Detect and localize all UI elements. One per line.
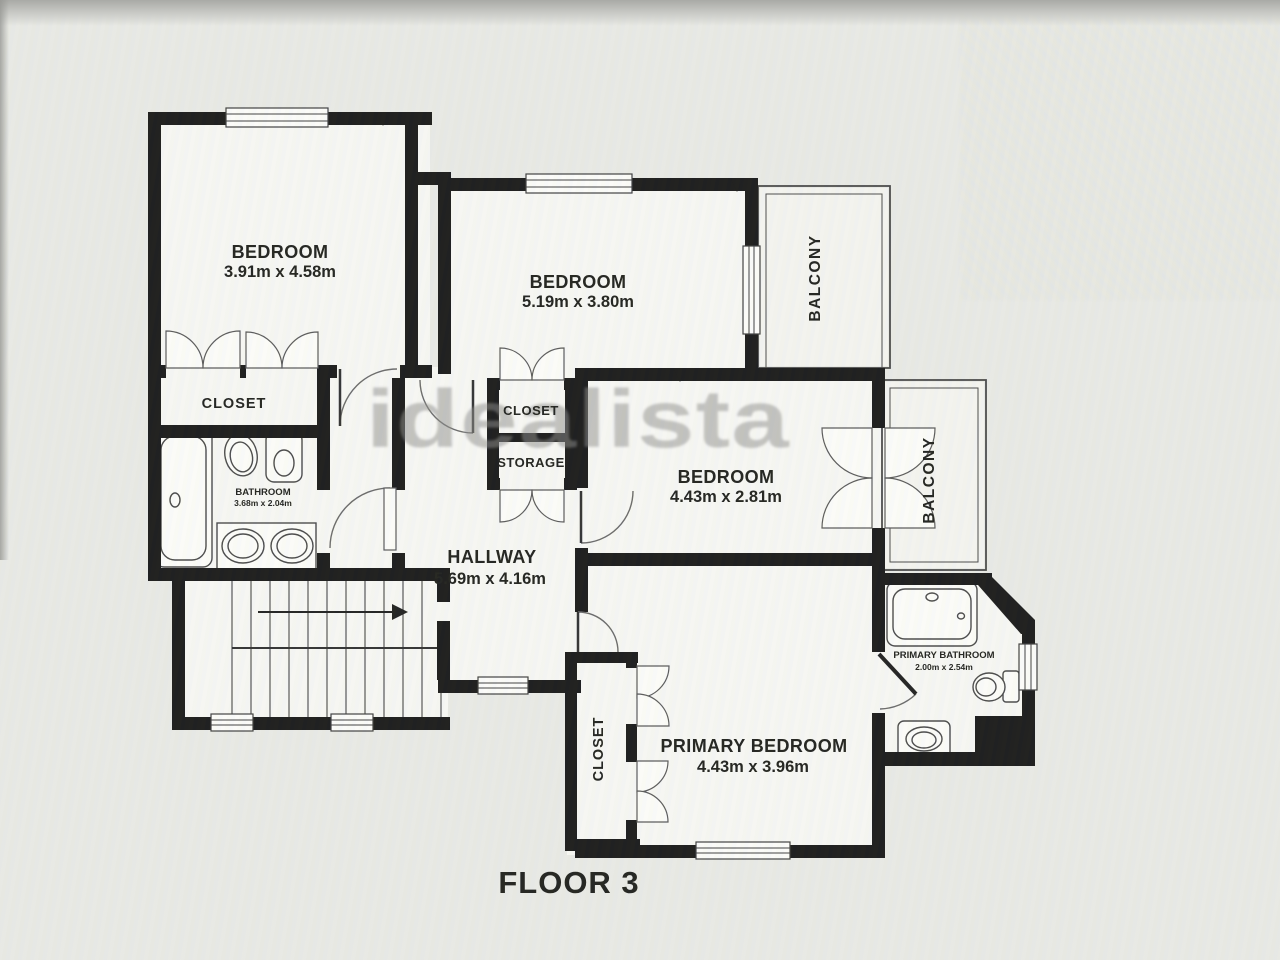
closet1-label: CLOSET: [202, 396, 267, 412]
primary-bathtub-drain: [958, 613, 965, 619]
bedroom3-label: BEDROOM: [678, 467, 775, 487]
bathtub-drain: [170, 493, 180, 507]
window-primary-bedroom: [696, 842, 790, 859]
bedroom3-dims: 4.43m x 2.81m: [670, 488, 782, 506]
hallway-dims: 5.69m x 4.16m: [434, 570, 546, 588]
balcony-door-bedroom2: [743, 246, 760, 334]
watermark-text: idealista: [366, 374, 790, 465]
vanity-double-sink: [217, 523, 316, 569]
hallway-label: HALLWAY: [447, 547, 536, 567]
primary-bathroom-label: PRIMARY BATHROOM: [893, 650, 994, 661]
window-hallway: [478, 677, 528, 694]
screenshot-root: idealista BEDROOM 3.91m x 4.58m BEDROOM …: [0, 0, 1280, 960]
balcony-top-label: BALCONY: [807, 234, 824, 321]
bathroom-dims: 3.68m x 2.04m: [234, 498, 292, 508]
primary-bathtub-faucet: [926, 593, 938, 601]
primary-bedroom-label: PRIMARY BEDROOM: [660, 736, 847, 756]
window-bedroom2: [526, 174, 632, 193]
bedroom2-dims: 5.19m x 3.80m: [522, 293, 634, 311]
balcony-mid-label: BALCONY: [921, 436, 938, 523]
bathtub-inner: [161, 436, 206, 560]
bidet: [266, 432, 302, 482]
primary-bathroom-dims: 2.00m x 2.54m: [915, 662, 973, 672]
floor-title: FLOOR 3: [498, 865, 639, 900]
bedroom1-label: BEDROOM: [232, 242, 329, 262]
closet-hall-label: CLOSET: [503, 403, 559, 418]
storage-label: STORAGE: [497, 455, 565, 470]
primary-bedroom-dims: 4.43m x 3.96m: [697, 758, 809, 776]
window-stairs-2: [331, 714, 373, 731]
stair-arrow-gap: [437, 602, 450, 621]
opening-primary: [573, 610, 590, 654]
window-stairs-1: [211, 714, 253, 731]
primary-closet-label: CLOSET: [591, 717, 607, 782]
bedroom1-dims: 3.91m x 4.58m: [224, 263, 336, 281]
primary-bedroom-floor: [567, 555, 883, 855]
window-bedroom1: [226, 108, 328, 127]
window-primary-bathroom: [1019, 644, 1037, 690]
primary-toilet: [973, 671, 1019, 702]
floor-plan-canvas: idealista BEDROOM 3.91m x 4.58m BEDROOM …: [0, 0, 1280, 960]
bathroom-label: BATHROOM: [235, 487, 290, 498]
balcony-top-floor: [760, 188, 888, 366]
bedroom2-label: BEDROOM: [530, 272, 627, 292]
